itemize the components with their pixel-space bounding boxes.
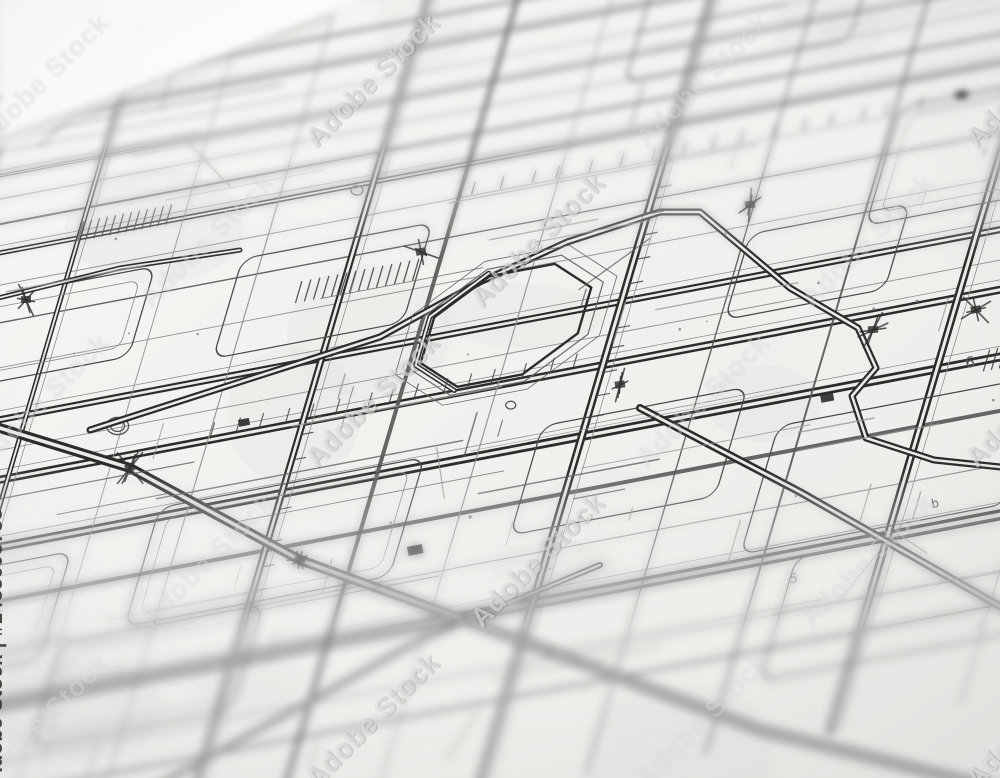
stock-photo-canvas: 65b Adobe StockAdobe StockAdobe StockAdo…: [0, 0, 1000, 778]
watermark-id-text: Adobe Stock | #1433098735: [0, 508, 8, 778]
blueprint-drawing: 65b: [0, 0, 1000, 778]
vignette-overlay: [0, 0, 1000, 778]
